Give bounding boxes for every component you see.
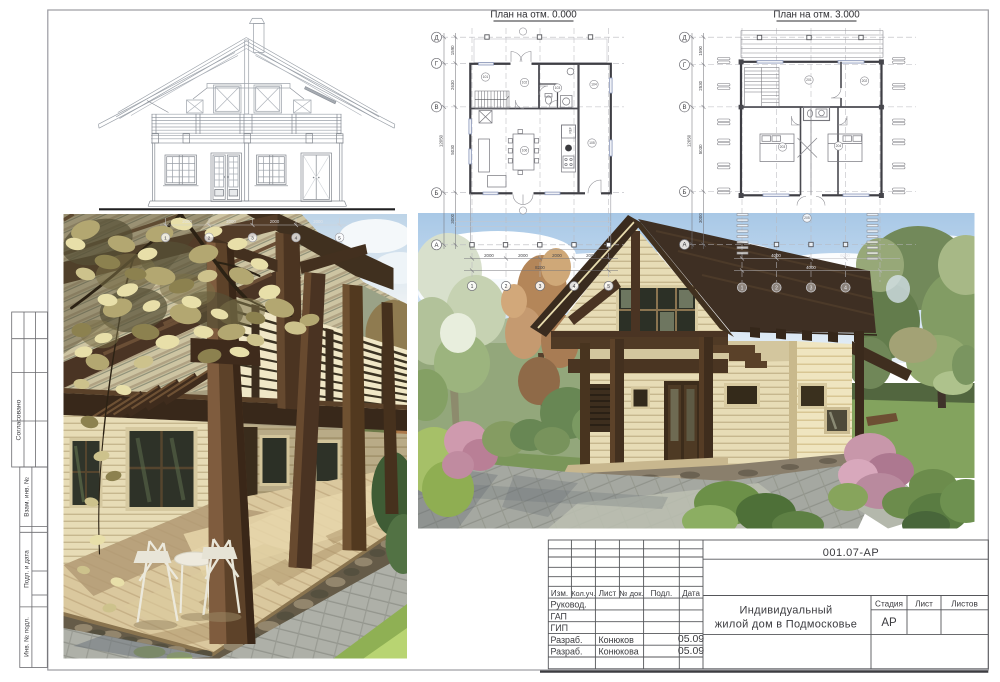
- svg-text:Индивидуальный: Индивидуальный: [740, 605, 833, 617]
- svg-text:Кол.уч.: Кол.уч.: [571, 589, 595, 598]
- svg-text:2000: 2000: [226, 219, 236, 224]
- svg-text:Согласовано: Согласовано: [16, 399, 23, 440]
- svg-text:Конюков: Конюков: [599, 635, 635, 645]
- svg-text:202: 202: [862, 79, 868, 83]
- svg-text:05.09: 05.09: [678, 633, 704, 645]
- svg-text:4: 4: [295, 235, 298, 241]
- svg-text:4000: 4000: [806, 265, 816, 270]
- svg-text:203: 203: [780, 145, 786, 149]
- svg-text:201: 201: [806, 78, 812, 82]
- svg-text:2000: 2000: [182, 219, 192, 224]
- svg-text:ГАП: ГАП: [551, 611, 567, 621]
- svg-text:№ док.: № док.: [619, 589, 643, 598]
- svg-text:2630: 2630: [450, 80, 455, 90]
- svg-text:Разраб.: Разраб.: [551, 647, 583, 657]
- svg-text:4000: 4000: [771, 253, 781, 258]
- svg-text:Листов: Листов: [951, 600, 978, 609]
- svg-text:ГИП: ГИП: [551, 623, 569, 633]
- svg-text:Изм.: Изм.: [551, 589, 568, 598]
- svg-text:В: В: [682, 105, 686, 111]
- svg-text:Б: Б: [683, 190, 687, 196]
- svg-text:1: 1: [471, 284, 474, 290]
- svg-text:3000: 3000: [450, 213, 455, 223]
- svg-text:План на отм. 3.000: План на отм. 3.000: [773, 10, 860, 21]
- svg-text:5030: 5030: [450, 144, 455, 154]
- svg-text:Б: Б: [435, 191, 439, 197]
- svg-text:05.09: 05.09: [678, 645, 704, 657]
- svg-text:2000: 2000: [552, 253, 562, 258]
- svg-text:REF: REF: [569, 127, 573, 133]
- svg-text:Инв. № подл.: Инв. № подл.: [23, 617, 30, 657]
- svg-text:8200: 8200: [535, 265, 545, 270]
- svg-text:1: 1: [164, 235, 167, 241]
- svg-text:3: 3: [251, 235, 254, 241]
- svg-text:3000: 3000: [698, 213, 703, 223]
- svg-text:1590: 1590: [698, 45, 703, 55]
- svg-text:Конюкова: Конюкова: [599, 647, 639, 657]
- svg-text:2000: 2000: [484, 253, 494, 258]
- svg-text:2000: 2000: [313, 219, 323, 224]
- svg-text:12050: 12050: [686, 134, 691, 147]
- svg-text:План на отм. 0.000: План на отм. 0.000: [490, 10, 577, 21]
- svg-text:204: 204: [836, 144, 842, 148]
- svg-text:12050: 12050: [438, 134, 443, 147]
- svg-text:4: 4: [844, 285, 847, 291]
- svg-text:2000: 2000: [270, 219, 280, 224]
- svg-text:5: 5: [607, 284, 610, 290]
- svg-text:А: А: [434, 243, 438, 249]
- svg-text:1590: 1590: [450, 45, 455, 55]
- svg-text:Подл.: Подл.: [651, 589, 673, 598]
- svg-text:Подп. и дата: Подп. и дата: [23, 550, 30, 588]
- svg-text:Д: Д: [434, 35, 438, 41]
- svg-text:2000: 2000: [586, 253, 596, 258]
- svg-text:Д: Д: [682, 35, 686, 41]
- svg-text:5: 5: [338, 235, 341, 241]
- svg-text:205: 205: [804, 216, 810, 220]
- svg-text:102: 102: [522, 81, 528, 85]
- svg-text:жилой дом в Подмосковье: жилой дом в Подмосковье: [715, 619, 857, 631]
- svg-text:103: 103: [555, 86, 561, 90]
- svg-text:Руковод.: Руковод.: [551, 600, 587, 610]
- svg-text:Дата: Дата: [682, 589, 700, 598]
- svg-text:001.07-АР: 001.07-АР: [823, 547, 879, 559]
- svg-text:АР: АР: [881, 617, 897, 629]
- svg-text:106: 106: [522, 149, 528, 153]
- svg-text:Лист: Лист: [915, 600, 933, 609]
- svg-text:1: 1: [741, 285, 744, 291]
- svg-text:2530: 2530: [698, 80, 703, 90]
- svg-text:Лист: Лист: [599, 589, 617, 598]
- svg-text:101: 101: [483, 75, 489, 79]
- svg-text:104: 104: [591, 83, 597, 87]
- svg-text:А: А: [682, 243, 686, 249]
- svg-text:5030: 5030: [698, 144, 703, 154]
- svg-text:3: 3: [539, 284, 542, 290]
- svg-text:Разраб.: Разраб.: [551, 635, 583, 645]
- svg-text:105: 105: [589, 141, 595, 145]
- svg-text:Взам. инв. №: Взам. инв. №: [23, 477, 30, 517]
- svg-text:2: 2: [775, 285, 778, 291]
- svg-text:2000: 2000: [518, 253, 528, 258]
- svg-text:3: 3: [810, 285, 813, 291]
- svg-text:Стадия: Стадия: [875, 600, 903, 609]
- svg-text:2: 2: [505, 284, 508, 290]
- svg-text:6000: 6000: [840, 253, 850, 258]
- svg-text:В: В: [434, 105, 438, 111]
- svg-text:4: 4: [573, 284, 576, 290]
- svg-text:2: 2: [208, 235, 211, 241]
